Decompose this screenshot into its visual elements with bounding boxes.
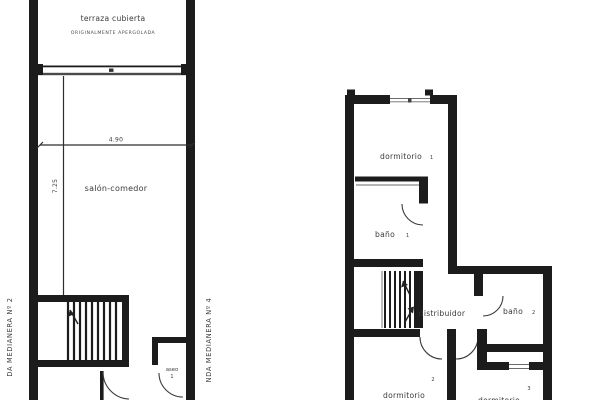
right-party-wall-annotation: NDA MEDIANERA Nº 4: [205, 298, 213, 383]
aseo-number: 1: [170, 374, 173, 380]
dormitorio2-label: dormitorio: [383, 391, 425, 400]
bano1-label: baño: [375, 230, 395, 239]
bano2-bottom-wall: [487, 344, 543, 352]
bano2-number: 2: [532, 310, 535, 316]
sliding-glass-door: [38, 64, 186, 75]
bano2-door-arc: [483, 296, 503, 316]
dormitorio1-label: dormitorio: [380, 152, 422, 161]
left-party-wall: [29, 0, 38, 400]
wall-top-right-wing: [448, 266, 552, 274]
dormitorio2-door-arc: [420, 337, 442, 359]
bano1-door-arc: [402, 204, 423, 225]
aseo-room: aseo 1: [152, 337, 186, 397]
outer-wall-left: [345, 95, 354, 400]
stair-direction-arrow-upper: [401, 281, 414, 322]
dimension-depth: 7.25: [52, 76, 64, 296]
outer-wall-right: [543, 266, 552, 400]
closet-dormitorio1: [355, 177, 423, 186]
bedroom-divider-wall: [447, 329, 456, 400]
dimension-width-value: 4.90: [109, 137, 124, 144]
aseo-label: aseo: [166, 367, 178, 373]
dimension-depth-value: 7.25: [52, 179, 59, 194]
bano1-bottom-wall: [348, 259, 423, 267]
staircase-upper: [382, 271, 423, 328]
bano2-entry-wall: [474, 274, 483, 296]
terraza-label: terraza cubierta: [81, 14, 146, 23]
dormitorio2-number: 2: [431, 377, 434, 383]
window: [390, 98, 430, 103]
floor-plan-sheet: terraza cubierta ORIGINALMENTE APERGOLAD…: [0, 0, 600, 400]
distribuidor-label: distribuidor: [419, 309, 466, 318]
dormitorio1-number: 1: [430, 155, 433, 161]
bano2-label: baño: [503, 307, 523, 316]
outer-wall-top: [345, 90, 457, 105]
closet-dormitorio3: [477, 362, 543, 370]
floor-plan-drawing: terraza cubierta ORIGINALMENTE APERGOLAD…: [0, 0, 600, 400]
dimension-width: 4.90: [37, 137, 195, 149]
dormitorio3-number: 3: [527, 386, 530, 392]
dormitorio3-label: dormitorio: [478, 396, 520, 400]
staircase: [38, 295, 129, 367]
right-party-wall: [186, 0, 195, 400]
outer-wall-right-upper: [448, 95, 457, 270]
upper-floor-plan: dormitorio 1 baño 1 distribuidor: [345, 90, 552, 400]
hall-door: [100, 371, 129, 400]
dormitorio3-door-arc: [456, 337, 478, 359]
bano1-wall: [419, 177, 428, 204]
distribuidor-bottom-wall: [348, 329, 420, 337]
ground-floor-plan: terraza cubierta ORIGINALMENTE APERGOLAD…: [6, 0, 213, 400]
terraza-note: ORIGINALMENTE APERGOLADA: [71, 30, 156, 36]
stair-treads: [68, 302, 116, 360]
bano1-number: 1: [406, 233, 409, 239]
left-party-wall-annotation: DA MEDIANERA Nº 2: [6, 297, 14, 376]
salon-comedor-label: salón-comedor: [85, 183, 148, 193]
